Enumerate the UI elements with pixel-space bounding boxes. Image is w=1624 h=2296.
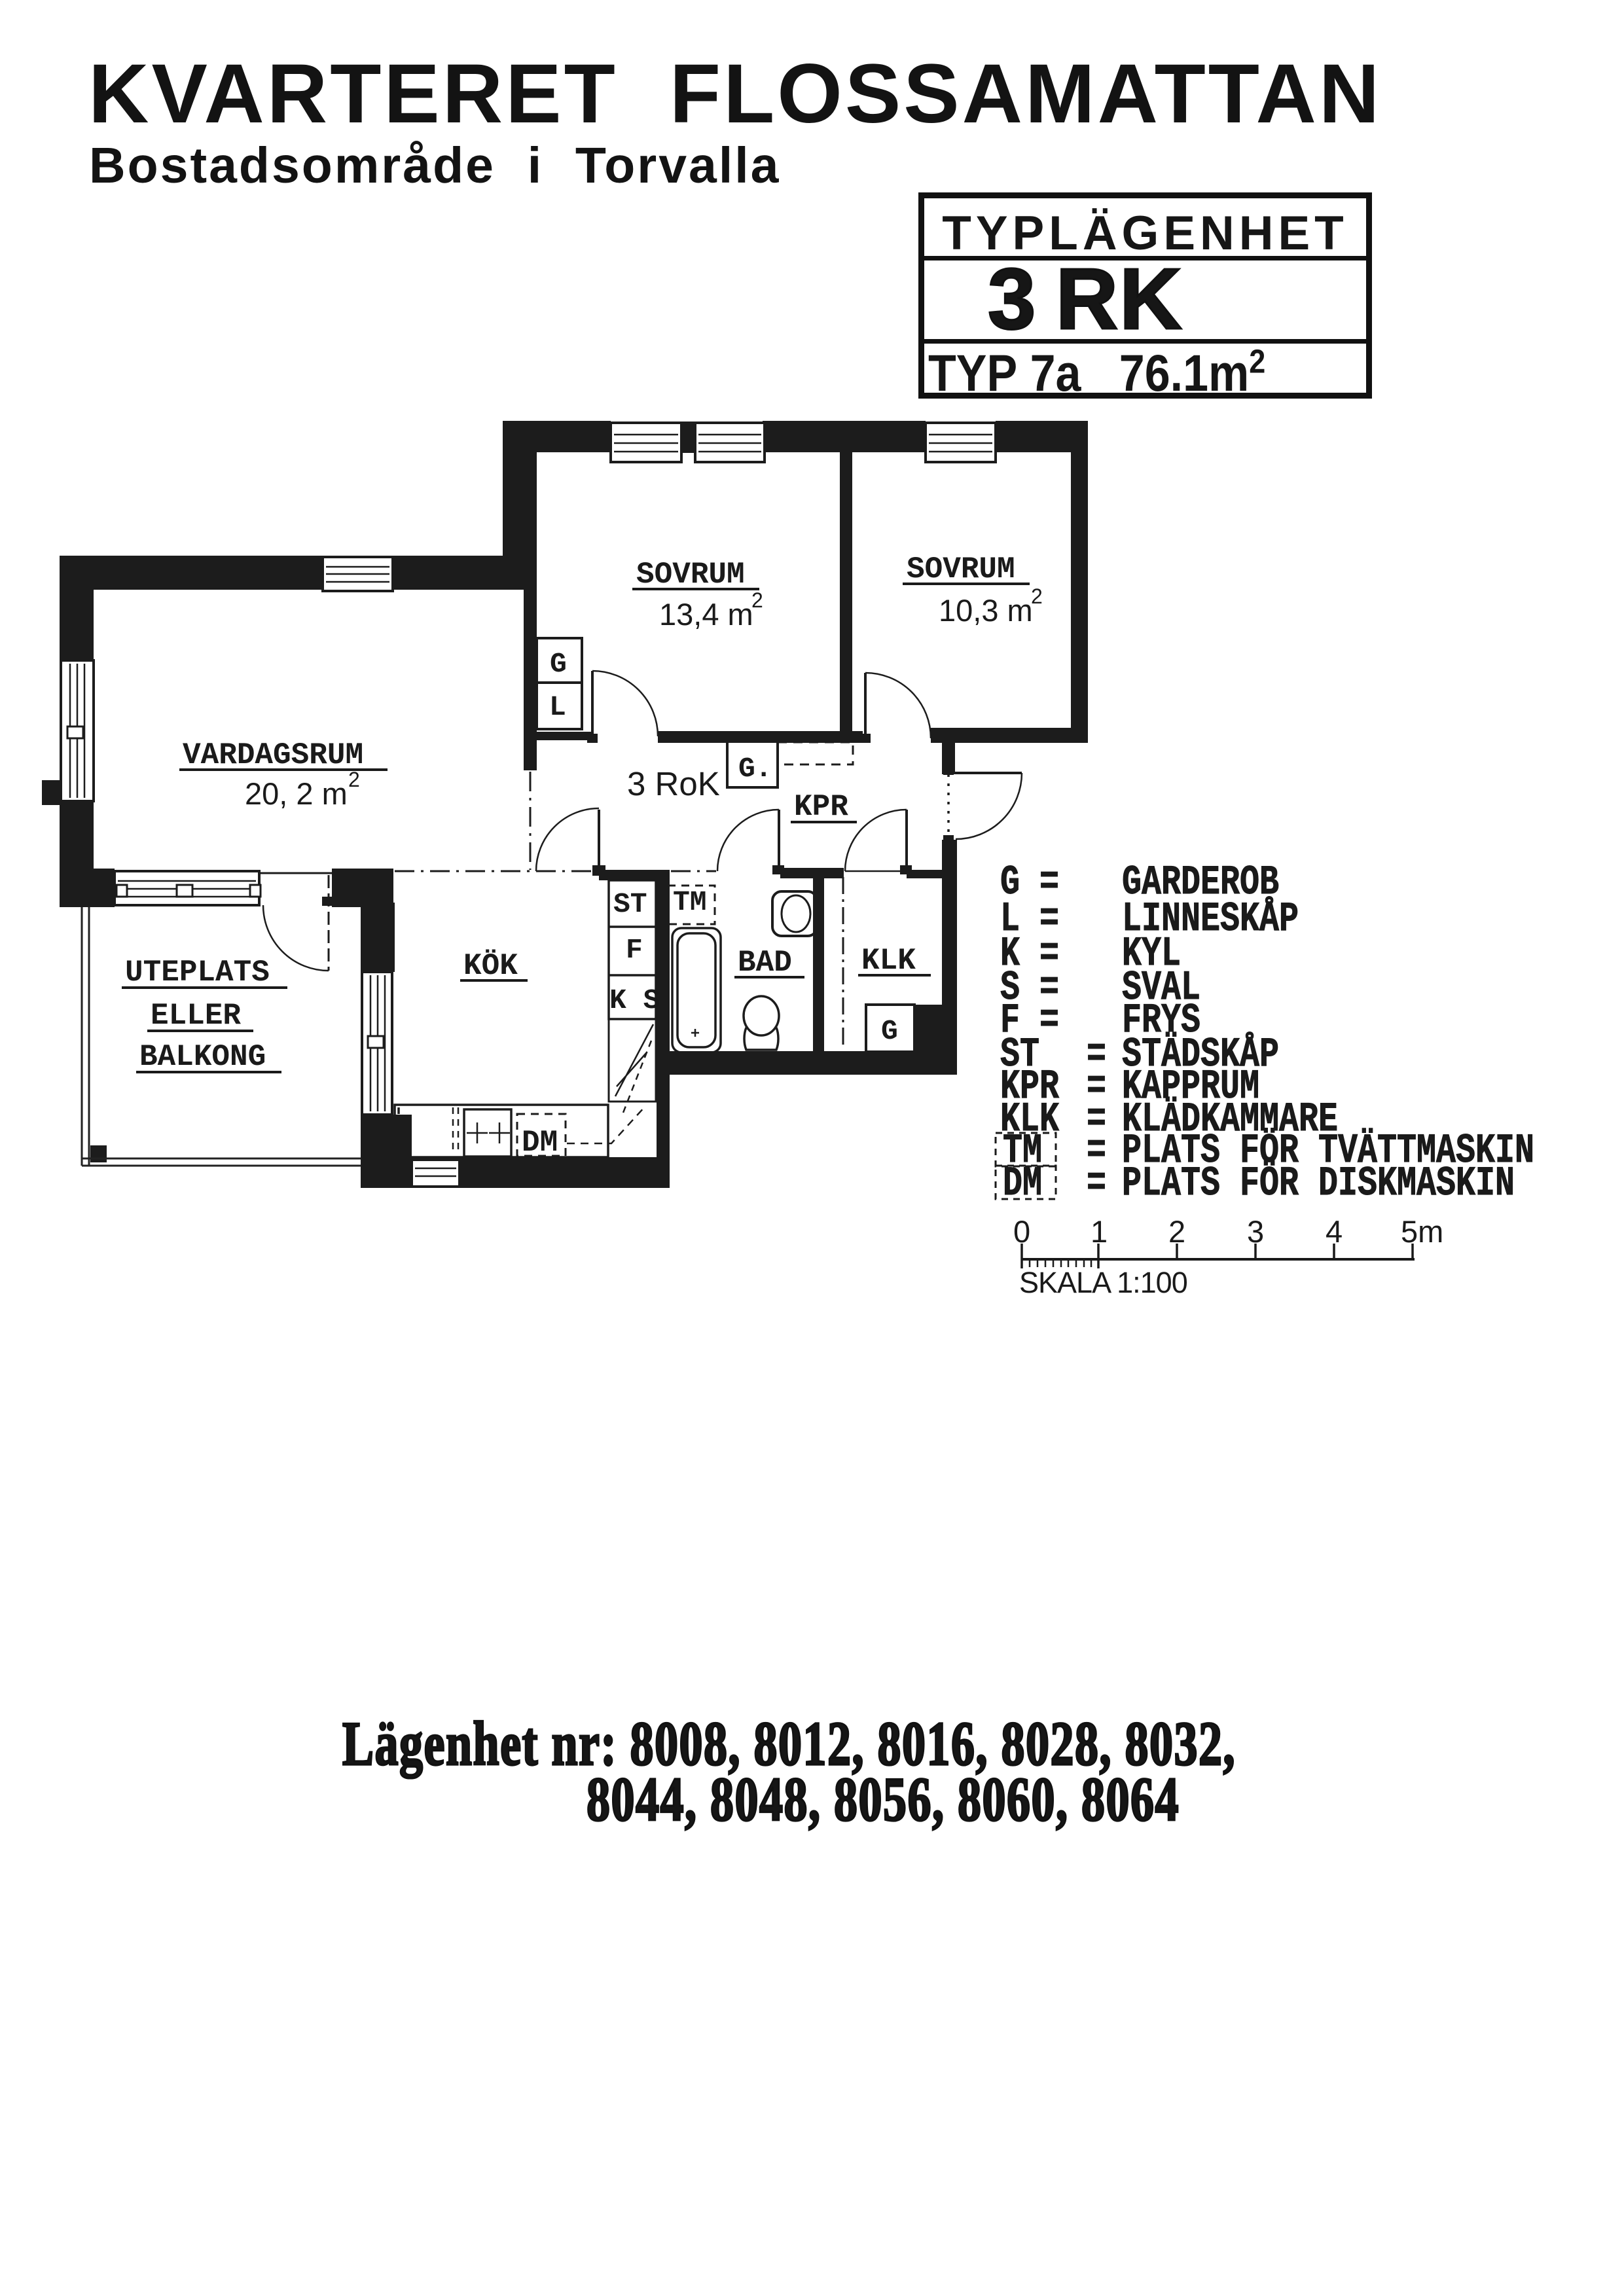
svg-text:4: 4 [1326,1214,1343,1249]
svg-text:1: 1 [1091,1214,1108,1249]
svg-text:G.: G. [738,753,772,785]
svg-text:SOVRUM: SOVRUM [636,558,745,592]
svg-text:2: 2 [1031,584,1043,608]
svg-text:PLATS FÖR DISKMASKIN: PLATS FÖR DISKMASKIN [1122,1160,1515,1208]
svg-text:2: 2 [348,768,360,791]
svg-text:=: = [1087,1161,1106,1208]
svg-text:SKALA 1:100: SKALA 1:100 [1019,1266,1187,1299]
svg-text:F: F [626,934,643,966]
svg-text:UTEPLATS: UTEPLATS [125,956,270,990]
svg-text:BALKONG: BALKONG [139,1040,266,1074]
svg-text:ST: ST [613,888,647,920]
svg-text:3: 3 [1247,1214,1264,1249]
svg-text:KÖK: KÖK [463,949,518,983]
svg-text:BAD: BAD [738,946,792,980]
svg-text:DM: DM [522,1126,558,1160]
svg-text:K S: K S [609,984,660,1016]
svg-text:20, 2 m: 20, 2 m [245,776,348,811]
svg-text:10,3 m: 10,3 m [939,593,1033,628]
svg-text:13,4 m: 13,4 m [659,597,753,632]
svg-text:L: L [549,691,566,723]
svg-text:TM: TM [673,886,707,918]
svg-text:G: G [550,648,567,680]
svg-text:G: G [881,1015,898,1047]
svg-text:2: 2 [1168,1214,1185,1249]
svg-text:=: = [1039,998,1059,1045]
svg-text:3 RoK: 3 RoK [627,765,720,802]
svg-text:ELLER: ELLER [151,999,241,1033]
svg-text:SOVRUM: SOVRUM [907,552,1015,586]
svg-text:KLK: KLK [861,944,916,978]
svg-text:KPR: KPR [794,790,848,824]
svg-text:2: 2 [751,588,763,612]
svg-text:0: 0 [1013,1214,1030,1249]
svg-text:VARDAGSRUM: VARDAGSRUM [183,738,363,772]
svg-text:DM: DM [1003,1161,1042,1208]
svg-text:5m: 5m [1401,1214,1443,1249]
